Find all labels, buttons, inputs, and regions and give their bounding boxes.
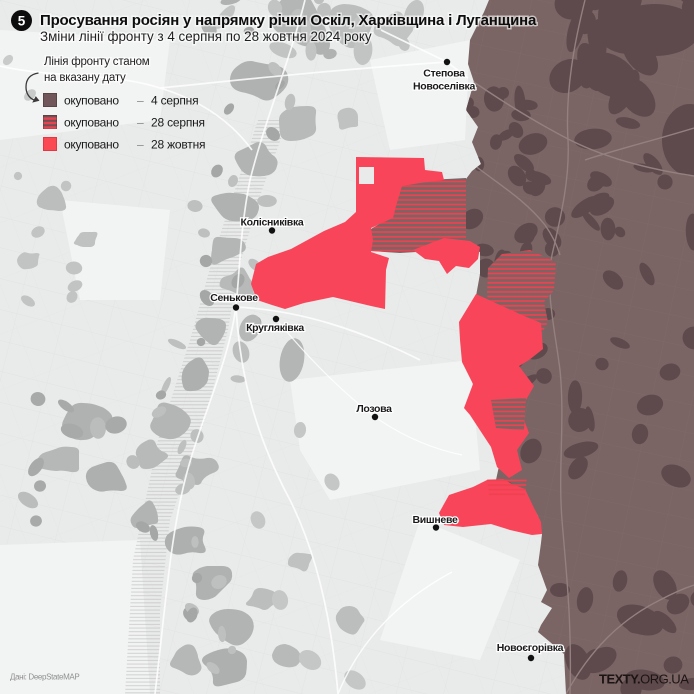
svg-text:5: 5 [18,13,26,28]
svg-text:окуповано: окуповано [64,94,119,108]
svg-text:–: – [137,116,144,130]
svg-text:Сенькове: Сенькове [210,292,258,304]
svg-text:окуповано: окуповано [64,116,119,130]
svg-text:–: – [137,94,144,108]
svg-text:28 серпня: 28 серпня [151,116,205,130]
svg-text:Новоселівка: Новоселівка [413,81,476,93]
svg-text:4 серпня: 4 серпня [151,94,198,108]
svg-text:–: – [137,138,144,152]
svg-text:Вишневе: Вишневе [412,514,457,526]
svg-text:на вказану дату: на вказану дату [44,72,126,84]
svg-text:Колісниківка: Колісниківка [241,217,304,229]
svg-text:Степова: Степова [423,68,465,80]
svg-text:Зміни лінії фронту з 4 серпня: Зміни лінії фронту з 4 серпня по 28 жовт… [40,29,372,44]
svg-text:Просування росіян у напрямку р: Просування росіян у напрямку річки Оскіл… [40,12,537,29]
svg-text:TEXTY.ORG.UA: TEXTY.ORG.UA [599,672,689,687]
svg-text:Дані: DeepStateMAP: Дані: DeepStateMAP [10,673,79,682]
svg-text:окуповано: окуповано [64,138,119,152]
svg-text:Кругляківка: Кругляківка [246,322,304,334]
svg-text:28 жовтня: 28 жовтня [151,138,205,152]
svg-text:Лінія фронту станом: Лінія фронту станом [44,56,150,68]
svg-text:Новоєгорівка: Новоєгорівка [497,642,564,654]
svg-text:Лозова: Лозова [356,403,392,415]
